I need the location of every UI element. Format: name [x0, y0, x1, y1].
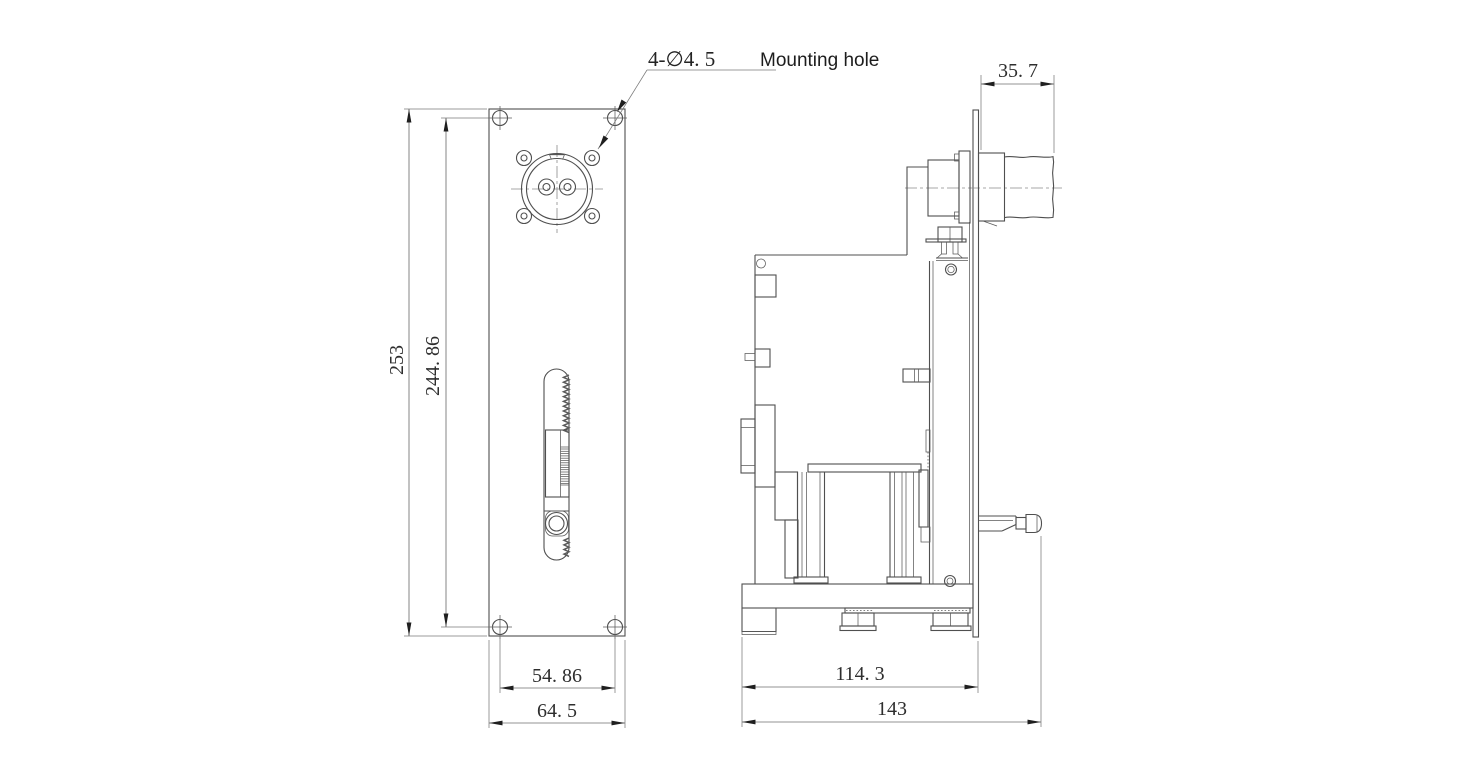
body-corner-hole	[757, 259, 766, 268]
solenoid-top-plate	[808, 464, 921, 472]
inner-column	[903, 261, 933, 584]
roller-body	[1005, 156, 1054, 217]
dim-label-hole-span-vertical: 244. 86	[422, 336, 444, 396]
solenoid-assembly	[775, 464, 921, 583]
note-diameter-label: 4-∅4. 5	[648, 47, 715, 71]
side-plate	[970, 110, 979, 637]
dimension-hole-span-horizontal: 54. 86	[500, 636, 615, 693]
column-clip	[903, 369, 930, 382]
washer	[926, 239, 966, 242]
base-left-foot	[742, 608, 776, 632]
slider-block	[546, 430, 570, 497]
mounting-hole-bottom-right	[603, 615, 627, 639]
dim-label-width-overall: 64. 5	[537, 700, 577, 722]
slide-slot	[544, 369, 569, 560]
rod-knob	[1026, 515, 1042, 533]
mounting-hole-top-right	[603, 106, 627, 130]
dim-label-height-overall: 253	[386, 345, 408, 375]
solenoid-side-block	[775, 472, 798, 520]
slot-roller	[544, 511, 569, 536]
rack-teeth-lower	[564, 538, 569, 556]
dimension-roller-length: 35. 7	[981, 60, 1054, 153]
switch-block	[755, 349, 770, 367]
dim-label-hole-span-horizontal: 54. 86	[532, 665, 582, 687]
connector-block	[755, 405, 775, 487]
engineering-drawing-canvas: 4-∅4. 5 Mounting hole 253 244. 86 54.	[0, 0, 1480, 757]
base-assembly	[742, 576, 973, 635]
dim-label-roller-length: 35. 7	[998, 60, 1038, 82]
side-view: 35. 7 114. 3 143	[741, 60, 1062, 727]
dimension-hole-span-vertical: 244. 86	[422, 118, 494, 627]
adjuster-rod	[979, 515, 1042, 533]
terminal-block	[755, 275, 776, 297]
solenoid-left-leg	[794, 472, 828, 583]
technical-drawing: 4-∅4. 5 Mounting hole 253 244. 86 54.	[0, 0, 1480, 757]
note-text-label: Mounting hole	[760, 50, 879, 71]
mounting-flange	[511, 145, 603, 233]
solenoid-right-leg	[887, 472, 921, 583]
column-bracket	[919, 470, 928, 527]
motor-flange	[959, 151, 970, 223]
motor-bracket-line	[907, 167, 928, 255]
corner-mounting-holes	[488, 106, 627, 639]
switch-tab	[745, 354, 755, 361]
leader-arrow-2	[597, 135, 609, 149]
base-plate	[742, 584, 973, 608]
mounting-hole-note: 4-∅4. 5 Mounting hole	[597, 47, 880, 149]
bolt-assembly	[926, 227, 968, 275]
dim-label-body-depth: 114. 3	[835, 663, 884, 685]
front-view: 4-∅4. 5 Mounting hole 253 244. 86 54.	[386, 47, 879, 728]
dimension-body-depth: 114. 3	[742, 637, 978, 727]
screw-head	[946, 264, 957, 275]
rack-teeth	[564, 375, 570, 433]
solenoid-side-post	[785, 520, 798, 578]
roller-hub	[979, 153, 1005, 221]
connector-plug	[741, 419, 755, 473]
dim-label-overall-depth: 143	[877, 698, 907, 720]
rod-neck	[1016, 518, 1026, 530]
dimension-overall-depth: 143	[742, 536, 1041, 727]
base-screw	[945, 576, 956, 587]
